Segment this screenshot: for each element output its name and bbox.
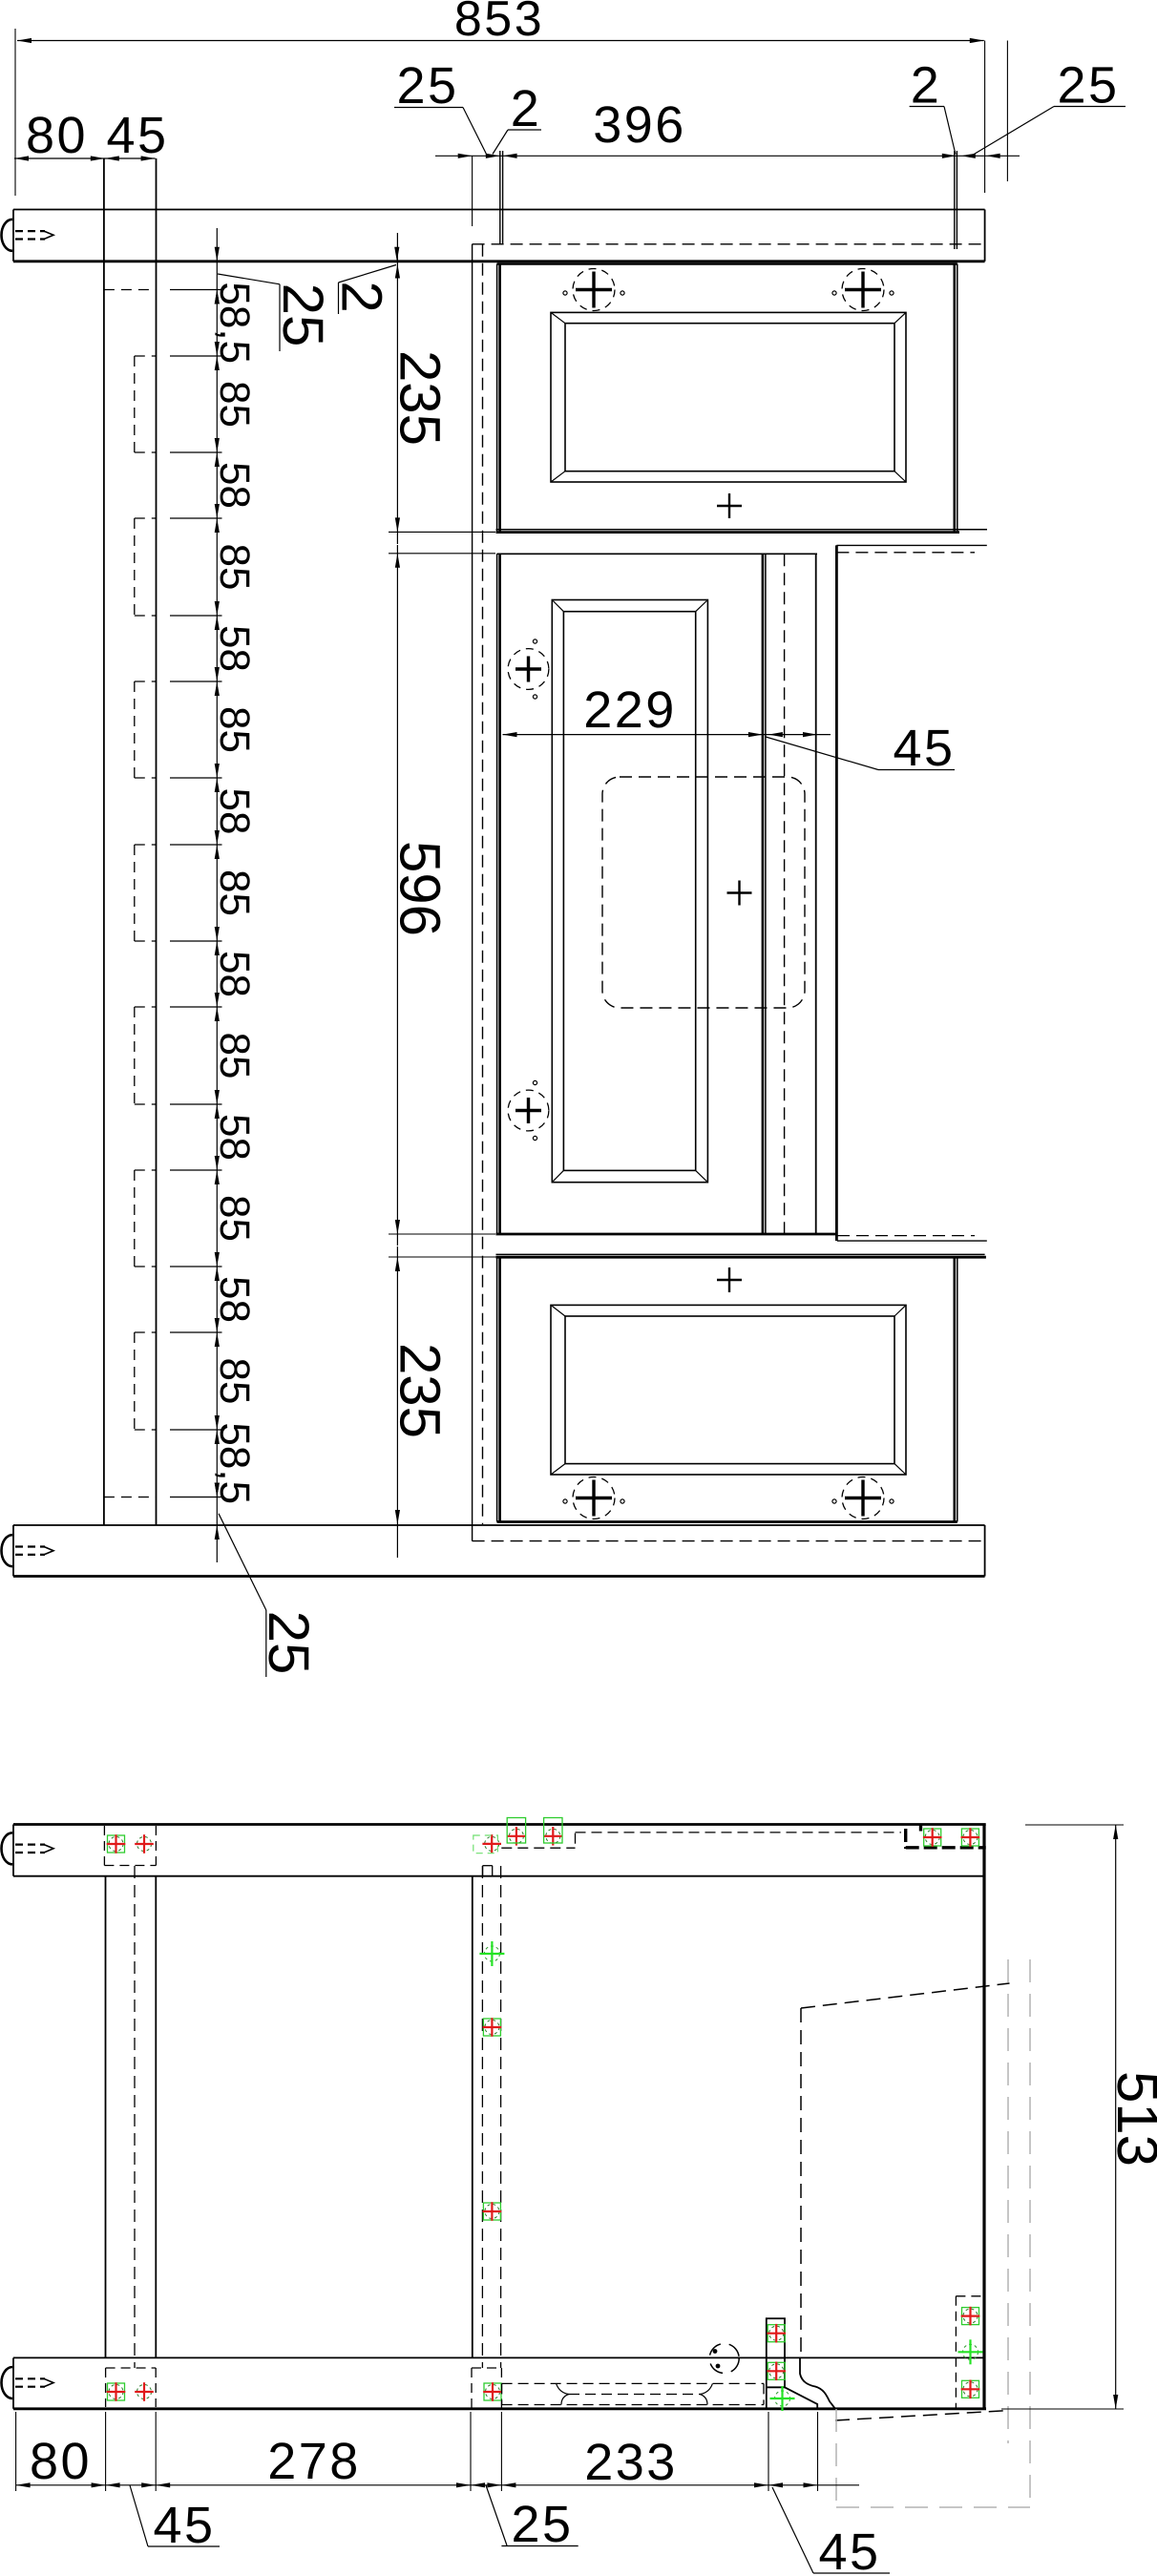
svg-text:235: 235 — [389, 1343, 452, 1438]
svg-text:596: 596 — [389, 841, 452, 936]
svg-text:58: 58 — [211, 1114, 258, 1161]
svg-text:25: 25 — [1057, 57, 1119, 115]
svg-text:396: 396 — [593, 96, 686, 154]
svg-text:235: 235 — [389, 350, 452, 446]
svg-text:85: 85 — [211, 381, 258, 428]
svg-text:58: 58 — [211, 951, 258, 997]
svg-text:85: 85 — [211, 1195, 258, 1242]
svg-text:853: 853 — [454, 0, 544, 47]
svg-text:58: 58 — [211, 1276, 258, 1323]
svg-text:80: 80 — [30, 2433, 92, 2490]
svg-text:58: 58 — [211, 788, 258, 835]
svg-text:513: 513 — [1105, 2071, 1157, 2167]
svg-text:85: 85 — [211, 869, 258, 916]
svg-text:25: 25 — [396, 57, 458, 115]
svg-text:25: 25 — [511, 2496, 573, 2553]
svg-text:2: 2 — [330, 281, 394, 312]
svg-text:85: 85 — [211, 544, 258, 591]
svg-text:45: 45 — [153, 2497, 215, 2554]
svg-text:45: 45 — [106, 107, 168, 164]
svg-text:58,5: 58,5 — [211, 282, 258, 364]
svg-text:45: 45 — [818, 2524, 880, 2576]
svg-text:233: 233 — [584, 2434, 678, 2491]
svg-text:45: 45 — [893, 720, 955, 777]
svg-text:80: 80 — [26, 107, 88, 164]
svg-text:85: 85 — [211, 1358, 258, 1405]
svg-text:2: 2 — [511, 80, 542, 137]
svg-text:58: 58 — [211, 462, 258, 509]
svg-text:58,5: 58,5 — [211, 1422, 258, 1504]
svg-text:85: 85 — [211, 706, 258, 753]
svg-text:2: 2 — [911, 57, 942, 115]
svg-text:25: 25 — [271, 283, 335, 347]
svg-text:229: 229 — [583, 681, 677, 739]
svg-text:85: 85 — [211, 1033, 258, 1079]
svg-text:25: 25 — [257, 1611, 321, 1675]
svg-text:278: 278 — [267, 2433, 361, 2490]
svg-text:58: 58 — [211, 625, 258, 672]
